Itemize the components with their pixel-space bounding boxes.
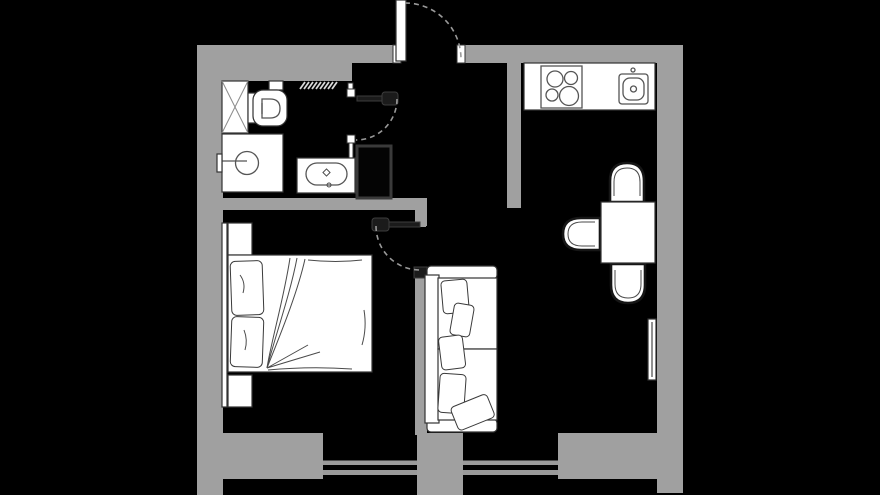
toilet-bowl — [253, 90, 287, 126]
sofa-backrest — [425, 275, 439, 423]
top-wall-hall — [352, 45, 397, 63]
top-wall-right — [463, 45, 683, 63]
ventilation-shaft — [357, 146, 391, 198]
bedroom-top-wall — [223, 198, 427, 210]
window-left-inner-frame — [323, 470, 417, 475]
bottom-wall-left — [223, 433, 323, 479]
bed-pillow-north — [230, 260, 264, 315]
left-wall — [197, 45, 223, 495]
window-right-inner-frame — [463, 470, 558, 475]
bedroom — [222, 223, 372, 407]
sofa-pillow-3 — [438, 335, 466, 371]
right-wall — [657, 45, 683, 493]
entrance-door — [393, 0, 465, 63]
nightstand-north — [228, 223, 252, 255]
bathroom-door-leaf-end — [382, 92, 398, 105]
bedroom-door — [372, 215, 427, 278]
sofa — [425, 266, 497, 432]
headboard-trim — [222, 223, 227, 407]
towel-radiator — [300, 82, 337, 89]
chair-west — [563, 218, 600, 250]
washing-machine — [222, 134, 283, 192]
washing-machine-wall-bracket — [217, 154, 222, 172]
bedroom-door-leaf-end — [372, 218, 389, 231]
floor-plan-screenshot — [0, 0, 880, 495]
entrance-door-leaf — [396, 0, 406, 61]
chair-north — [610, 163, 644, 202]
chair-south — [611, 264, 645, 303]
floor-plan-svg — [0, 0, 880, 495]
top-wall-bathroom — [197, 45, 352, 81]
bottom-wall-pier — [417, 433, 463, 495]
bathroom-door-jamb-top — [347, 89, 355, 97]
bed-pillow-south — [230, 316, 264, 367]
dining-table — [601, 202, 655, 263]
bathroom — [217, 81, 355, 193]
bedroom-door-swing-arc — [376, 226, 420, 270]
toilet-flush-plate — [269, 81, 283, 90]
bottom-wall-right — [558, 433, 657, 479]
bathroom-door-jamb-bottom — [347, 135, 355, 143]
kitchen-partition-wall — [507, 63, 521, 208]
dining-set — [563, 163, 656, 380]
nightstand-south — [228, 375, 252, 407]
window-left-outer-frame — [323, 461, 417, 466]
kitchen — [524, 63, 655, 110]
entrance-door-swing-arc — [405, 3, 461, 59]
bathroom-partition-lower — [349, 143, 353, 159]
window-right-outer-frame — [463, 461, 558, 466]
bathroom-door — [347, 89, 398, 143]
